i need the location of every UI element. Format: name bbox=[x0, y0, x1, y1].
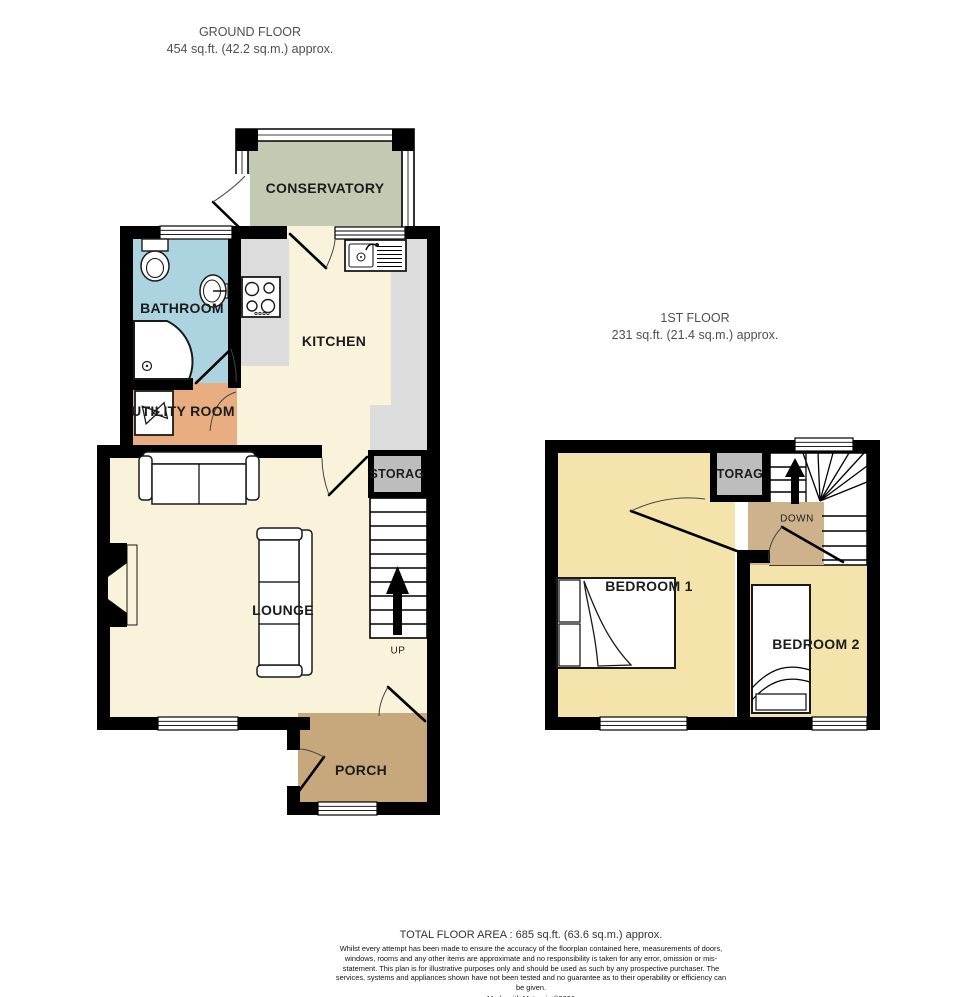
bed-footboard bbox=[756, 694, 806, 710]
stairs-up-label: UP bbox=[391, 646, 406, 657]
total-floor-area: TOTAL FLOOR AREA : 685 sq.ft. (63.6 sq.m… bbox=[331, 929, 731, 941]
room-label-porch: PORCH bbox=[335, 762, 387, 778]
first-floor-title-line: 1ST FLOOR bbox=[545, 310, 845, 327]
disclaimer-text: Whilst every attempt has been made to en… bbox=[331, 944, 731, 993]
room-label-bedroom2: BEDROOM 2 bbox=[772, 636, 860, 652]
toilet bbox=[141, 239, 169, 281]
conservatory-corner-post bbox=[392, 129, 414, 151]
room-label-bathroom: BATHROOM bbox=[140, 300, 224, 316]
room-label-storage-first: TORAG bbox=[717, 467, 763, 481]
stairs-down-label: DOWN bbox=[780, 514, 814, 525]
lounge-window bbox=[158, 717, 238, 730]
ground-stairs bbox=[370, 498, 427, 638]
room-label-bedroom1: BEDROOM 1 bbox=[605, 578, 693, 594]
porch-window bbox=[318, 802, 377, 815]
kitchen-counter-bottom bbox=[370, 405, 427, 452]
ground-floor-title: GROUND FLOOR 454 sq.ft. (42.2 sq.m.) app… bbox=[100, 24, 400, 57]
kitchen-conservatory-window bbox=[335, 227, 405, 239]
floorplan-graphics bbox=[0, 0, 980, 997]
fireplace bbox=[97, 543, 137, 627]
first-floor-plan bbox=[545, 438, 880, 730]
sofa-two-seat bbox=[139, 452, 259, 504]
first-floor-area: 231 sq.ft. (21.4 sq.m.) approx. bbox=[545, 327, 845, 344]
room-label-conservatory: CONSERVATORY bbox=[266, 180, 385, 196]
room-label-lounge: LOUNGE bbox=[252, 602, 314, 618]
conservatory-corner-post bbox=[236, 129, 258, 151]
bedroom2-window bbox=[812, 717, 867, 730]
kitchen-sink bbox=[345, 240, 406, 271]
room-label-utility: UTILITY ROOM bbox=[131, 403, 235, 419]
bedroom-divider-wall bbox=[737, 552, 750, 730]
bedroom1-window bbox=[600, 717, 687, 730]
room-label-storage-ground: STORAG bbox=[369, 467, 424, 481]
stairs-window bbox=[795, 438, 853, 451]
ground-floor-title-line: GROUND FLOOR bbox=[100, 24, 400, 41]
porch-floor bbox=[298, 713, 433, 808]
bathroom-window bbox=[160, 226, 232, 239]
hob bbox=[242, 277, 280, 317]
ground-floor-area: 454 sq.ft. (42.2 sq.m.) approx. bbox=[100, 41, 400, 58]
floorplan-page: GROUND FLOOR 454 sq.ft. (42.2 sq.m.) app… bbox=[0, 0, 980, 997]
first-floor-title: 1ST FLOOR 231 sq.ft. (21.4 sq.m.) approx… bbox=[545, 310, 845, 343]
room-label-kitchen: KITCHEN bbox=[302, 333, 366, 349]
footer: TOTAL FLOOR AREA : 685 sq.ft. (63.6 sq.m… bbox=[331, 929, 731, 997]
